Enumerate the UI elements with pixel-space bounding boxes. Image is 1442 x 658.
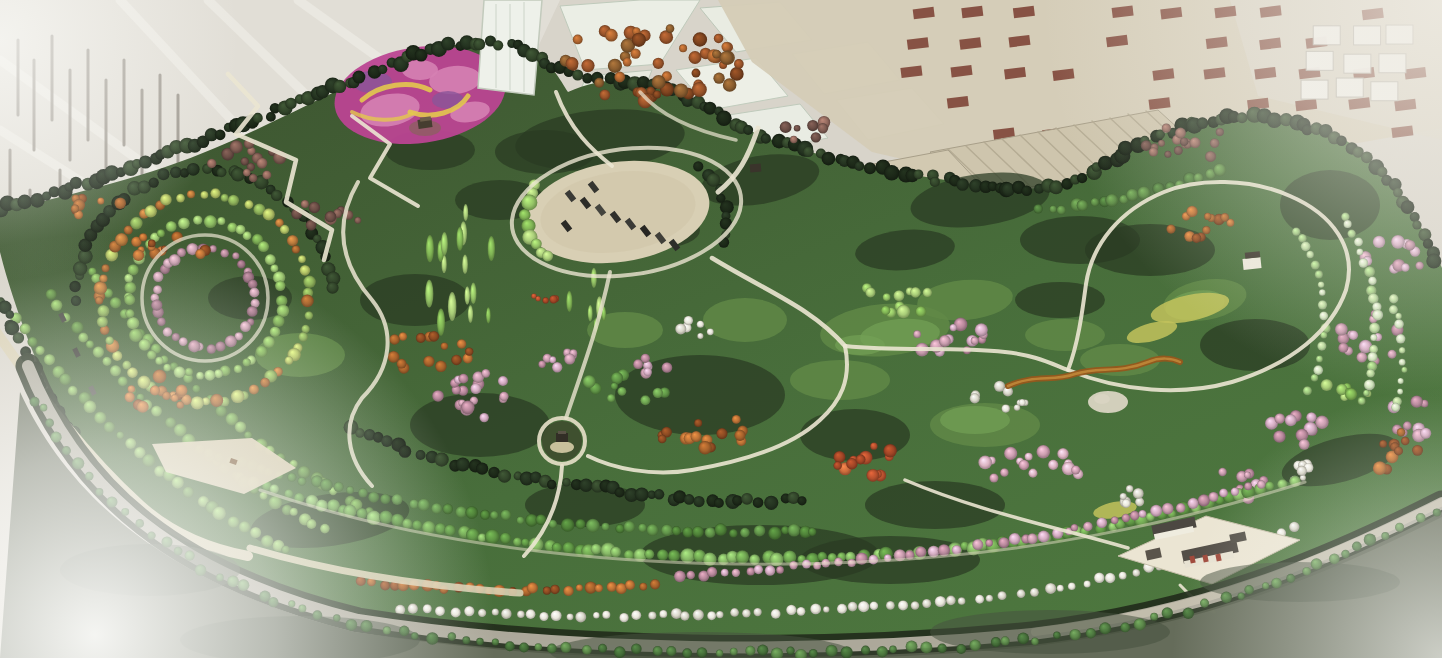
scene-svg: [0, 0, 1442, 658]
vignette-top-right-haze: [0, 0, 1442, 658]
park-aerial-rendering: [0, 0, 1442, 658]
